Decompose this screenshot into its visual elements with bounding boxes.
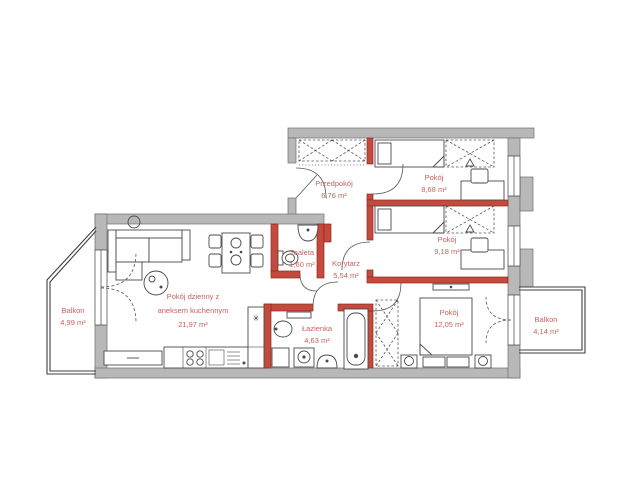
label-balcony-left-area: 4,99 m² bbox=[60, 318, 86, 327]
label-balcony-left-name: Balkon bbox=[62, 306, 85, 315]
freezer-star-icon: ✳ bbox=[253, 314, 260, 323]
bathroom-wall-left bbox=[264, 304, 271, 368]
label-room2-area: 9,18 m² bbox=[434, 247, 460, 256]
label-hall-area: 6,76 m² bbox=[321, 191, 347, 200]
hall-furniture bbox=[299, 140, 365, 165]
bedroom-wardrobe bbox=[376, 300, 398, 366]
glass bbox=[240, 251, 243, 254]
label-bedroom-area: 12,05 m² bbox=[434, 320, 464, 329]
label-balcony-right-area: 4,14 m² bbox=[533, 327, 559, 336]
washing-machine-door bbox=[302, 355, 305, 358]
bed-pillow bbox=[423, 357, 445, 367]
label-toilet-area: 1,60 m² bbox=[289, 260, 315, 269]
label-room2-name: Pokój bbox=[438, 235, 457, 244]
nightstand bbox=[475, 355, 491, 368]
bathroom-shelf bbox=[287, 312, 311, 318]
label-room1-area: 8,68 m² bbox=[421, 185, 447, 194]
bathtub-drain bbox=[354, 354, 358, 358]
balcony-left-structure bbox=[47, 227, 96, 374]
pillar-right-lower bbox=[520, 249, 533, 287]
wall-living-left-upper bbox=[95, 214, 107, 250]
sofa-cushion bbox=[116, 238, 149, 262]
tv-shelf-mark bbox=[450, 286, 453, 289]
dining-chair bbox=[209, 235, 221, 248]
sofa-armrest-left bbox=[108, 230, 116, 272]
wardrobe-cross bbox=[446, 140, 494, 167]
room1-room2-wall bbox=[367, 200, 508, 206]
glass bbox=[230, 251, 233, 254]
bathroom-sink-faucet bbox=[275, 328, 278, 331]
toilet-wall-bottom bbox=[271, 271, 300, 278]
label-bathroom-name: Łazienka bbox=[302, 324, 333, 333]
nightstand bbox=[401, 355, 417, 368]
dining-set bbox=[209, 233, 263, 273]
desk-chair bbox=[471, 169, 488, 183]
balcony-right-door-arc-upper bbox=[486, 297, 511, 320]
desk bbox=[461, 250, 504, 269]
bathroom-wall-top-left bbox=[264, 304, 313, 311]
toilet-sink bbox=[298, 225, 318, 241]
bed-single bbox=[375, 206, 444, 233]
room1-door-arc bbox=[373, 164, 403, 194]
label-toilet-name: Toaleta bbox=[290, 248, 315, 257]
fridge-column: ✳ bbox=[248, 307, 264, 368]
corridor-room2-wall-a bbox=[367, 206, 373, 240]
dining-chair bbox=[251, 254, 263, 267]
toilet-wall-right bbox=[317, 224, 324, 278]
label-living-name-2: aneksem kuchennym bbox=[158, 306, 229, 315]
wall-right-3 bbox=[508, 266, 520, 295]
hall-wardrobe-cross bbox=[299, 140, 365, 161]
sofa-cushion bbox=[149, 238, 182, 262]
dining-table bbox=[222, 233, 250, 273]
hall-room1-wall-b bbox=[367, 194, 373, 200]
sofa-armrest-right bbox=[182, 230, 190, 260]
label-living-name-1: Pokój dzienny z bbox=[167, 292, 220, 301]
sofa bbox=[108, 230, 190, 280]
toilet-sink-faucet bbox=[307, 229, 310, 232]
toilet-wall-left bbox=[271, 224, 278, 271]
small-sink-faucet bbox=[326, 360, 329, 363]
label-hall-name: Przedpokój bbox=[315, 179, 353, 188]
wall-right-4 bbox=[508, 345, 520, 378]
label-balcony-right-name: Balkon bbox=[535, 315, 558, 324]
coffee-table bbox=[144, 271, 168, 295]
faucet bbox=[243, 362, 246, 365]
desk bbox=[461, 181, 504, 200]
hall-wardrobe bbox=[299, 140, 365, 161]
pillar-right-upper bbox=[520, 177, 533, 211]
bedroom-wardrobe-cross bbox=[376, 300, 398, 366]
sofa-back bbox=[116, 230, 182, 238]
toilet-door-arc bbox=[300, 274, 317, 291]
coffee-table-item bbox=[160, 286, 163, 289]
dining-chair bbox=[209, 254, 221, 267]
entrance-door-leaf bbox=[296, 175, 317, 198]
bathroom-door-arc bbox=[313, 282, 338, 307]
label-corridor-area: 5,54 m² bbox=[333, 271, 359, 280]
label-bathroom-area: 4,63 m² bbox=[304, 336, 330, 345]
kitchen-counter bbox=[164, 347, 248, 368]
wardrobe-mark bbox=[466, 225, 474, 232]
label-bedroom-name: Pokój bbox=[440, 308, 459, 317]
balcony-right-door-arc-lower bbox=[486, 320, 511, 343]
label-corridor-name: Korytarz bbox=[332, 259, 360, 268]
balcony-left-railing-outer bbox=[47, 227, 96, 374]
tv-bench bbox=[104, 351, 162, 365]
coffee-table-top bbox=[144, 271, 168, 295]
floor-plan: ✳ bbox=[0, 0, 640, 480]
wall-right-1 bbox=[508, 138, 520, 156]
corridor-room2-wall-b bbox=[367, 270, 373, 277]
wall-hall-left-upper bbox=[288, 138, 296, 163]
washing-machine bbox=[294, 348, 314, 367]
bed-pillow bbox=[447, 357, 469, 367]
bathtub bbox=[344, 309, 368, 369]
label-living-area: 21,97 m² bbox=[178, 320, 208, 329]
wall-bottom bbox=[95, 368, 520, 378]
toilet-fixtures bbox=[278, 225, 318, 265]
corridor-stub-wall bbox=[324, 224, 331, 242]
wall-right-2 bbox=[508, 196, 520, 226]
sofa-chaise bbox=[116, 262, 142, 280]
wall-living-top bbox=[95, 214, 324, 224]
bedroom-door-arc bbox=[373, 283, 401, 311]
wall-top bbox=[288, 128, 534, 138]
desk-chair bbox=[471, 238, 488, 252]
wardrobe-cross bbox=[446, 206, 494, 233]
bathroom-cabinet bbox=[272, 348, 289, 367]
wardrobe-mark bbox=[466, 159, 474, 166]
wall-hall-left-lower bbox=[288, 198, 296, 216]
hall-room1-wall-a bbox=[367, 138, 373, 164]
room2-bedroom-wall bbox=[367, 277, 508, 283]
bed-single bbox=[375, 140, 444, 167]
label-room1-name: Pokój bbox=[425, 173, 444, 182]
dining-chair bbox=[251, 235, 263, 248]
